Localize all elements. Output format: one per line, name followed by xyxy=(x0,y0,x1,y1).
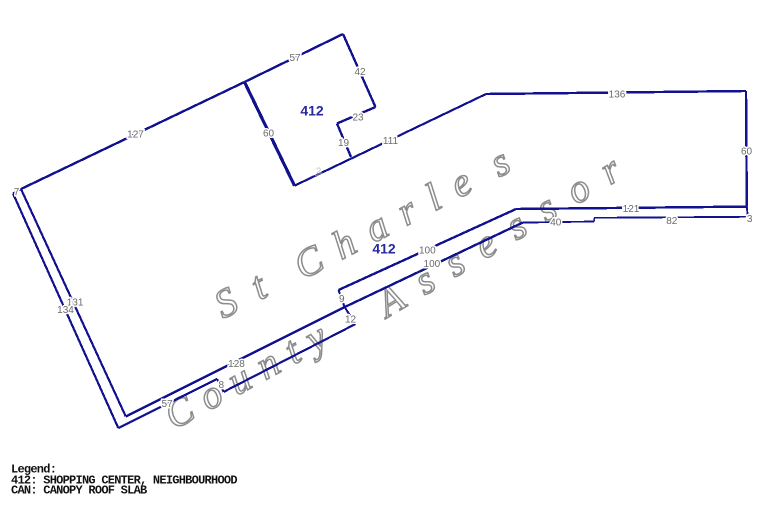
svg-text:412: 412 xyxy=(300,103,324,119)
svg-text:8: 8 xyxy=(219,380,225,391)
svg-text:60: 60 xyxy=(741,147,753,158)
svg-text:412: 412 xyxy=(372,241,396,257)
svg-text:121: 121 xyxy=(623,204,640,215)
svg-text:100: 100 xyxy=(419,246,436,257)
svg-text:2: 2 xyxy=(316,167,322,178)
svg-text:40: 40 xyxy=(550,218,562,229)
svg-text:12: 12 xyxy=(345,315,357,326)
svg-text:134: 134 xyxy=(57,305,74,316)
svg-text:127: 127 xyxy=(127,130,144,141)
svg-text:82: 82 xyxy=(666,216,678,227)
svg-text:3: 3 xyxy=(747,214,753,225)
svg-text:42: 42 xyxy=(354,67,366,78)
svg-text:St: St xyxy=(207,258,285,327)
svg-text:111: 111 xyxy=(383,136,399,147)
svg-text:CAN: CANOPY ROOF SLAB: CAN: CANOPY ROOF SLAB xyxy=(11,484,147,498)
svg-text:60: 60 xyxy=(263,129,275,140)
svg-text:9: 9 xyxy=(339,294,345,305)
svg-text:57: 57 xyxy=(162,399,174,410)
svg-text:100: 100 xyxy=(424,259,441,270)
svg-text:128: 128 xyxy=(228,359,245,370)
svg-text:County: County xyxy=(157,307,345,437)
svg-text:23: 23 xyxy=(352,113,364,124)
svg-text:19: 19 xyxy=(338,138,350,149)
svg-text:57: 57 xyxy=(289,53,301,64)
svg-text:7: 7 xyxy=(14,187,20,198)
svg-text:136: 136 xyxy=(609,90,626,101)
